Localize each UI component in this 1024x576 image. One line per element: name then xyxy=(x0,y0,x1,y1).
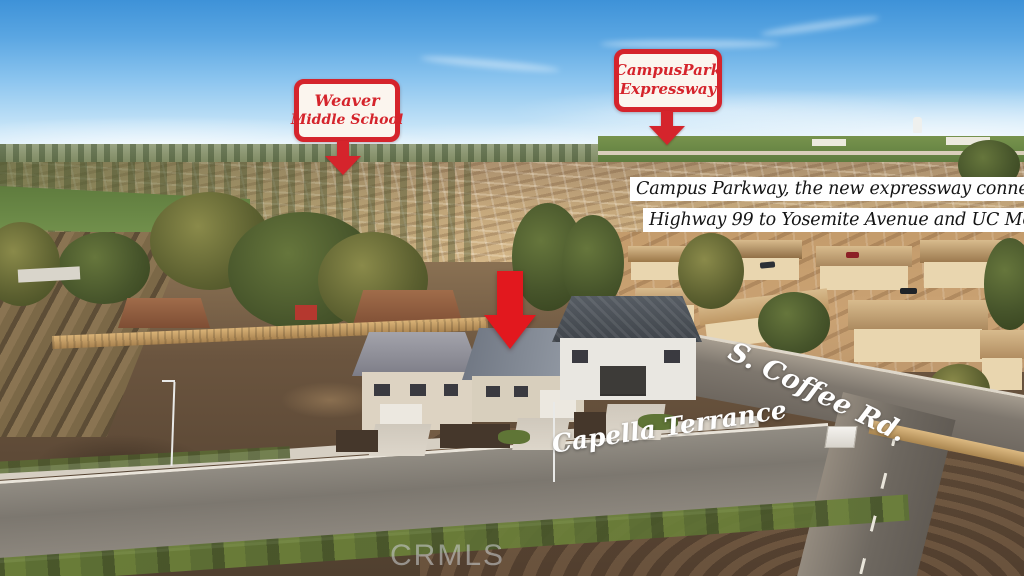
red-shed xyxy=(295,305,317,320)
parked-car xyxy=(900,288,917,294)
expressway-callout-line2: Expressway xyxy=(620,82,717,98)
caption-line2: Highway 99 to Yosemite Avenue and UC Mer… xyxy=(643,208,1024,232)
expressway-callout-line1: CampusPark xyxy=(615,63,721,79)
school-callout-line2: Middle School xyxy=(291,113,403,128)
suburb-house xyxy=(848,300,988,362)
older-house-roof xyxy=(118,298,210,328)
down-arrow-icon xyxy=(325,141,361,175)
suburb-house xyxy=(816,246,912,290)
lawn-patch xyxy=(498,430,530,444)
cloud xyxy=(600,40,780,48)
parked-car xyxy=(846,252,859,258)
crmls-watermark: CRMLS xyxy=(390,539,505,573)
school-callout-line1: Weaver xyxy=(314,93,379,110)
new-home-right xyxy=(552,296,702,404)
expressway-callout-box: CampusPark Expressway xyxy=(614,49,722,112)
white-canopy-tent xyxy=(824,426,857,448)
water-tower xyxy=(913,117,922,133)
aerial-photo: Weaver Middle School CampusPark Expressw… xyxy=(0,0,1024,576)
school-callout-box: Weaver Middle School xyxy=(294,79,400,142)
subject-property-arrow-icon xyxy=(484,271,536,349)
school-callout: Weaver Middle School xyxy=(294,79,400,142)
caption-line1: Campus Parkway, the new expressway conne… xyxy=(630,177,1024,201)
expressway-callout: CampusPark Expressway xyxy=(614,49,722,112)
distant-warehouse xyxy=(812,139,846,146)
driveway xyxy=(369,424,432,456)
front-yard-soil xyxy=(336,430,378,452)
tree xyxy=(758,292,830,354)
street-light-arm xyxy=(162,380,175,382)
down-arrow-icon xyxy=(649,111,685,145)
